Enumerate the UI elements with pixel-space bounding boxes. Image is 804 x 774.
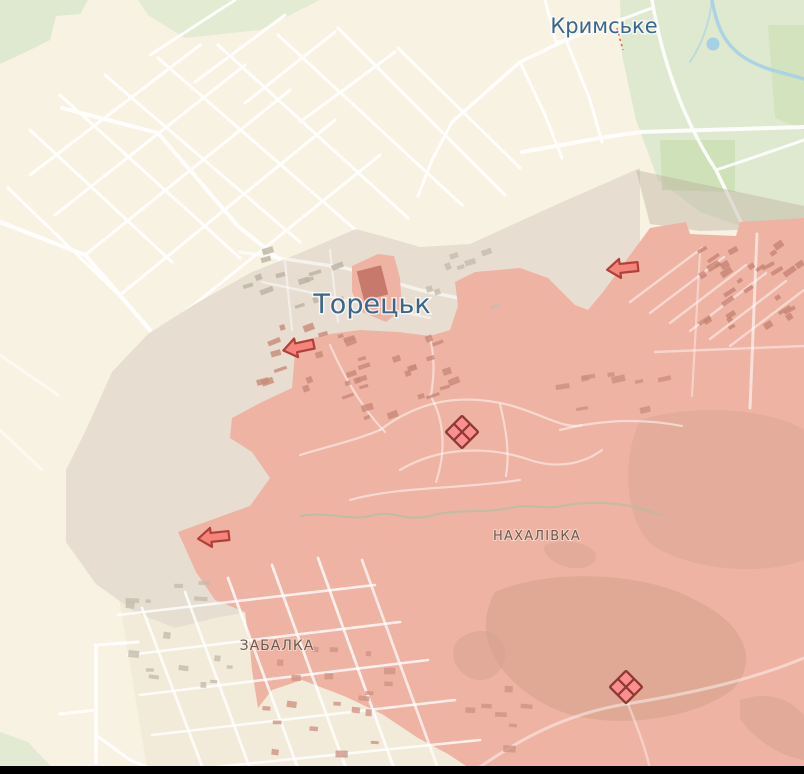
building [194, 596, 208, 601]
building [210, 680, 217, 683]
building [262, 706, 270, 711]
building [505, 686, 513, 693]
building [271, 749, 279, 756]
building [358, 696, 369, 702]
label-zabalka: ЗАБАЛКА [240, 638, 315, 654]
building [291, 675, 300, 681]
building [503, 745, 516, 753]
label-nakhalivka: НАХАЛІВКА [493, 529, 581, 544]
label-toretsk: Торецьк [312, 289, 430, 320]
building [227, 665, 233, 669]
building [335, 750, 347, 757]
building [509, 723, 517, 727]
building [277, 659, 284, 666]
label-krymske: Кримське [550, 14, 657, 38]
building [128, 650, 139, 658]
building [465, 707, 475, 713]
building [145, 599, 150, 603]
building [371, 741, 379, 745]
building [200, 682, 206, 688]
building [330, 647, 339, 652]
building [146, 668, 154, 672]
building [309, 726, 318, 731]
building [365, 709, 371, 716]
building [384, 681, 393, 686]
map-viewport[interactable]: Кримське Торецьк НАХАЛІВКА ЗАБАЛКА [0, 0, 804, 774]
building [324, 673, 333, 679]
building [333, 702, 341, 706]
bottom-letterbox-bar [0, 766, 804, 774]
building [214, 655, 221, 662]
building [365, 691, 373, 696]
building [174, 584, 183, 588]
building [495, 712, 507, 717]
building [481, 704, 492, 709]
building [286, 701, 297, 709]
building [125, 601, 134, 609]
building [384, 668, 395, 675]
building [163, 632, 171, 639]
building [366, 651, 372, 656]
building [198, 581, 210, 585]
building [273, 721, 282, 725]
building [351, 707, 360, 714]
